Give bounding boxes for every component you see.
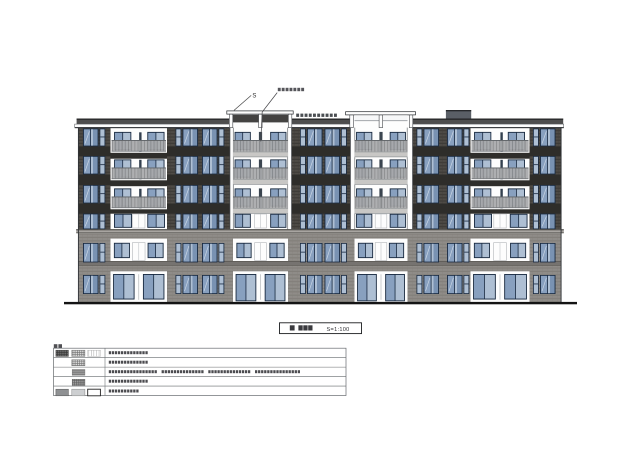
svg-text:S=1:100: S=1:100: [327, 327, 350, 333]
svg-text:S: S: [252, 94, 256, 100]
